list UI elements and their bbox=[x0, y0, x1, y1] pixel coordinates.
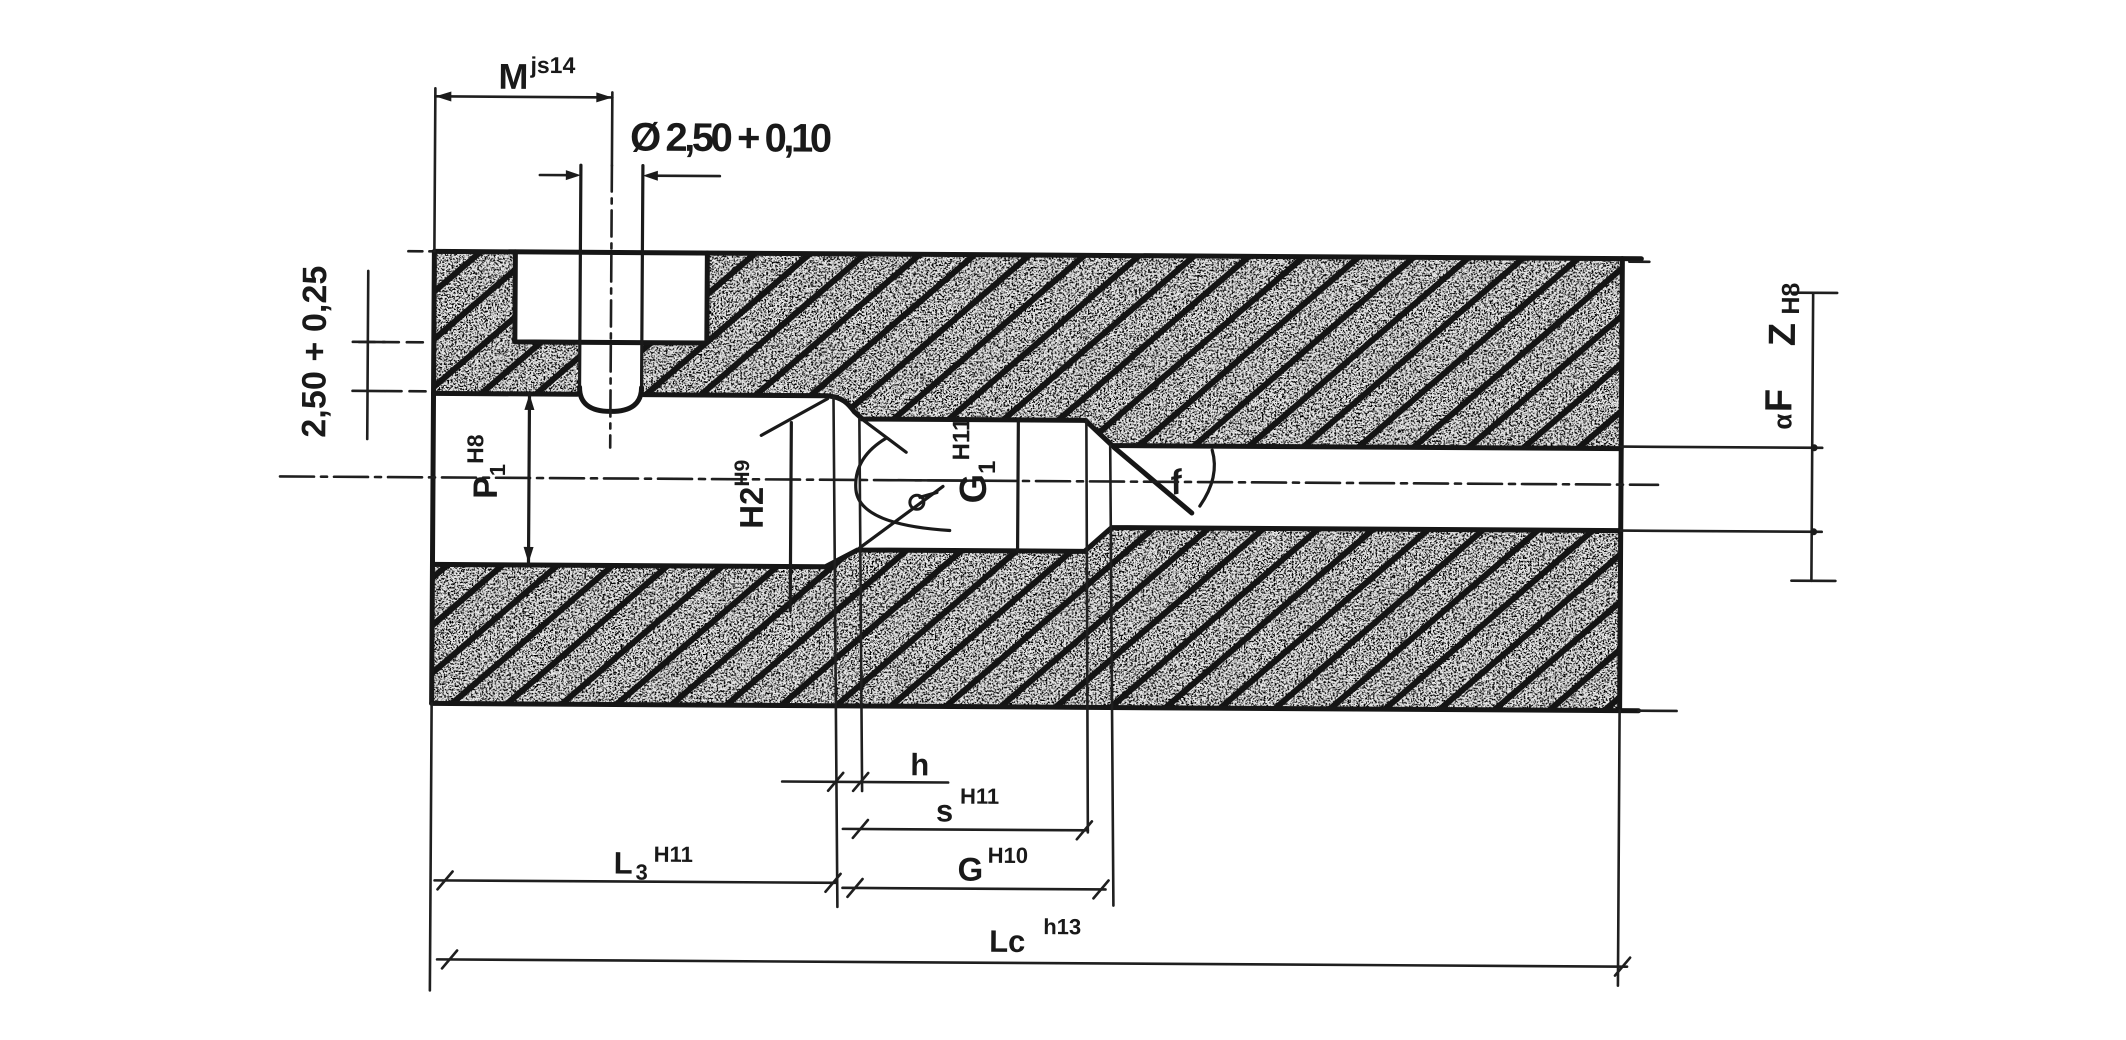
svg-text:H11: H11 bbox=[654, 842, 693, 867]
svg-text:G: G bbox=[958, 851, 984, 888]
svg-text:α: α bbox=[1767, 413, 1797, 429]
svg-text:Z: Z bbox=[1762, 323, 1804, 346]
svg-text:s: s bbox=[936, 793, 953, 828]
svg-text:M: M bbox=[498, 56, 528, 97]
svg-text:H10: H10 bbox=[988, 843, 1029, 868]
svg-text:js14: js14 bbox=[529, 52, 575, 78]
svg-text:h: h bbox=[910, 747, 929, 782]
svg-text:F: F bbox=[1758, 389, 1800, 412]
svg-text:L: L bbox=[614, 845, 633, 880]
svg-text:Ø 2,50 + 0,10: Ø 2,50 + 0,10 bbox=[630, 116, 832, 161]
svg-text:Lc: Lc bbox=[989, 924, 1025, 959]
svg-text:3: 3 bbox=[636, 860, 648, 885]
svg-text:H11: H11 bbox=[960, 784, 999, 809]
svg-text:h13: h13 bbox=[1043, 914, 1081, 939]
svg-text:2,50 + 0,25: 2,50 + 0,25 bbox=[295, 266, 334, 438]
svg-text:H8: H8 bbox=[1777, 282, 1805, 314]
